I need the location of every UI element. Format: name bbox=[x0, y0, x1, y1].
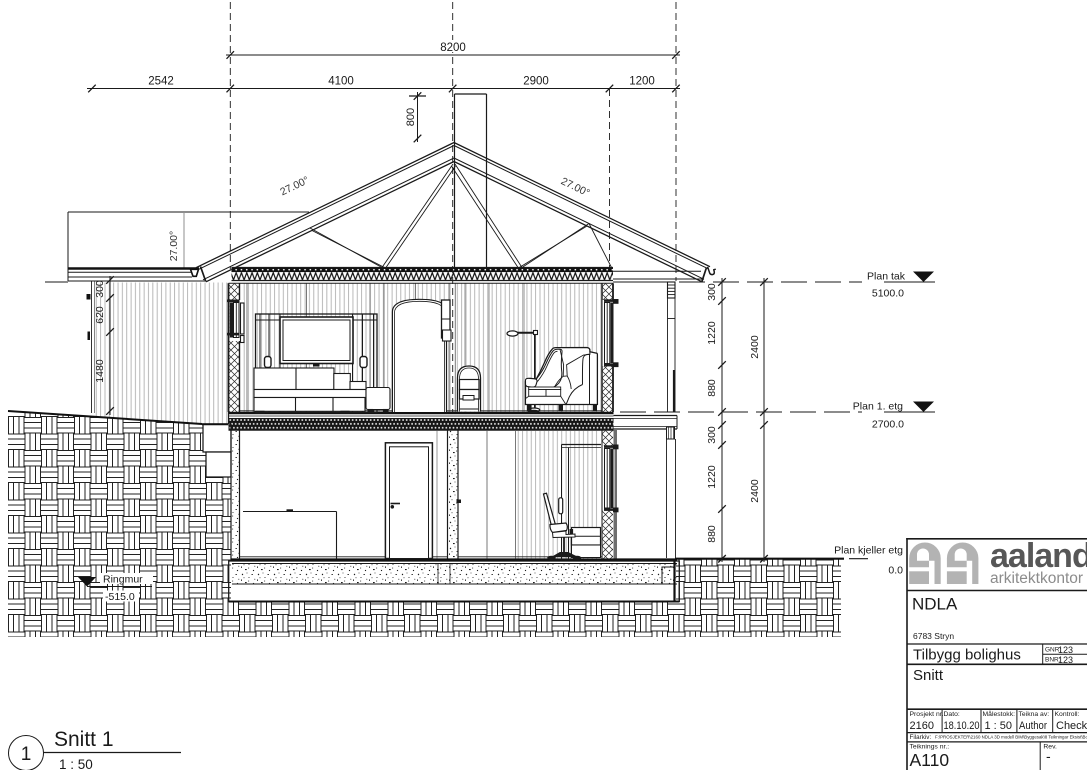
svg-text:Målestokk:: Målestokk: bbox=[983, 710, 1016, 718]
svg-text:Prosjekt nr.:: Prosjekt nr.: bbox=[910, 711, 946, 718]
svg-text:1220: 1220 bbox=[706, 321, 718, 345]
svg-text:Author: Author bbox=[1019, 720, 1047, 732]
svg-text:Kontroll:: Kontroll: bbox=[1055, 711, 1080, 718]
svg-text:-: - bbox=[1046, 748, 1051, 764]
svg-text:F:\PROSJEKTER\2160 NDLA 3D mod: F:\PROSJEKTER\2160 NDLA 3D modell BIM\By… bbox=[935, 735, 1087, 740]
svg-text:2700.0: 2700.0 bbox=[872, 419, 904, 431]
svg-text:1: 1 bbox=[21, 744, 32, 765]
svg-text:8200: 8200 bbox=[440, 42, 466, 54]
svg-text:Dato:: Dato: bbox=[944, 711, 960, 718]
svg-text:300: 300 bbox=[706, 426, 718, 444]
svg-text:2542: 2542 bbox=[148, 76, 174, 88]
svg-text:880: 880 bbox=[706, 379, 718, 397]
svg-text:Plan kjeller etg: Plan kjeller etg bbox=[834, 545, 903, 557]
svg-text:1 : 50: 1 : 50 bbox=[985, 720, 1013, 732]
svg-text:Checker: Checker bbox=[1056, 720, 1087, 732]
svg-text:Plan tak: Plan tak bbox=[867, 271, 906, 283]
svg-text:300: 300 bbox=[94, 280, 106, 298]
svg-text:1220: 1220 bbox=[706, 465, 718, 489]
svg-text:1480: 1480 bbox=[94, 359, 106, 383]
svg-text:Plan 1. etg: Plan 1. etg bbox=[853, 401, 903, 413]
svg-text:arkitektkontor: arkitektkontor bbox=[990, 570, 1083, 587]
svg-text:Tilbygg bolighus: Tilbygg bolighus bbox=[913, 647, 1021, 664]
svg-text:Snitt 1: Snitt 1 bbox=[54, 728, 114, 751]
svg-text:4100: 4100 bbox=[328, 76, 354, 88]
svg-text:880: 880 bbox=[706, 525, 718, 543]
svg-text:2400: 2400 bbox=[749, 335, 761, 359]
svg-text:A110: A110 bbox=[910, 750, 950, 770]
svg-text:2400: 2400 bbox=[749, 479, 761, 503]
svg-text:6783 Stryn: 6783 Stryn bbox=[913, 631, 954, 641]
svg-text:Ringmur: Ringmur bbox=[103, 574, 143, 586]
svg-text:300: 300 bbox=[706, 283, 718, 301]
svg-text:1 : 50: 1 : 50 bbox=[59, 757, 93, 770]
svg-text:620: 620 bbox=[94, 306, 106, 324]
svg-text:27.00°: 27.00° bbox=[168, 231, 180, 261]
svg-text:123: 123 bbox=[1058, 645, 1073, 655]
svg-text:800: 800 bbox=[405, 108, 417, 126]
svg-text:Snitt: Snitt bbox=[913, 667, 944, 684]
svg-text:1200: 1200 bbox=[629, 76, 655, 88]
svg-text:-515.0: -515.0 bbox=[105, 591, 135, 603]
svg-text:Teikna av:: Teikna av: bbox=[1019, 711, 1050, 718]
svg-text:2160: 2160 bbox=[910, 720, 934, 732]
svg-text:123: 123 bbox=[1058, 655, 1073, 665]
svg-text:Filarkiv:: Filarkiv: bbox=[910, 734, 932, 741]
svg-text:5100.0: 5100.0 bbox=[872, 288, 904, 300]
svg-text:NDLA: NDLA bbox=[912, 595, 958, 614]
svg-text:18.10.20: 18.10.20 bbox=[944, 720, 980, 732]
svg-text:2900: 2900 bbox=[523, 76, 549, 88]
svg-text:0.0: 0.0 bbox=[888, 565, 903, 577]
